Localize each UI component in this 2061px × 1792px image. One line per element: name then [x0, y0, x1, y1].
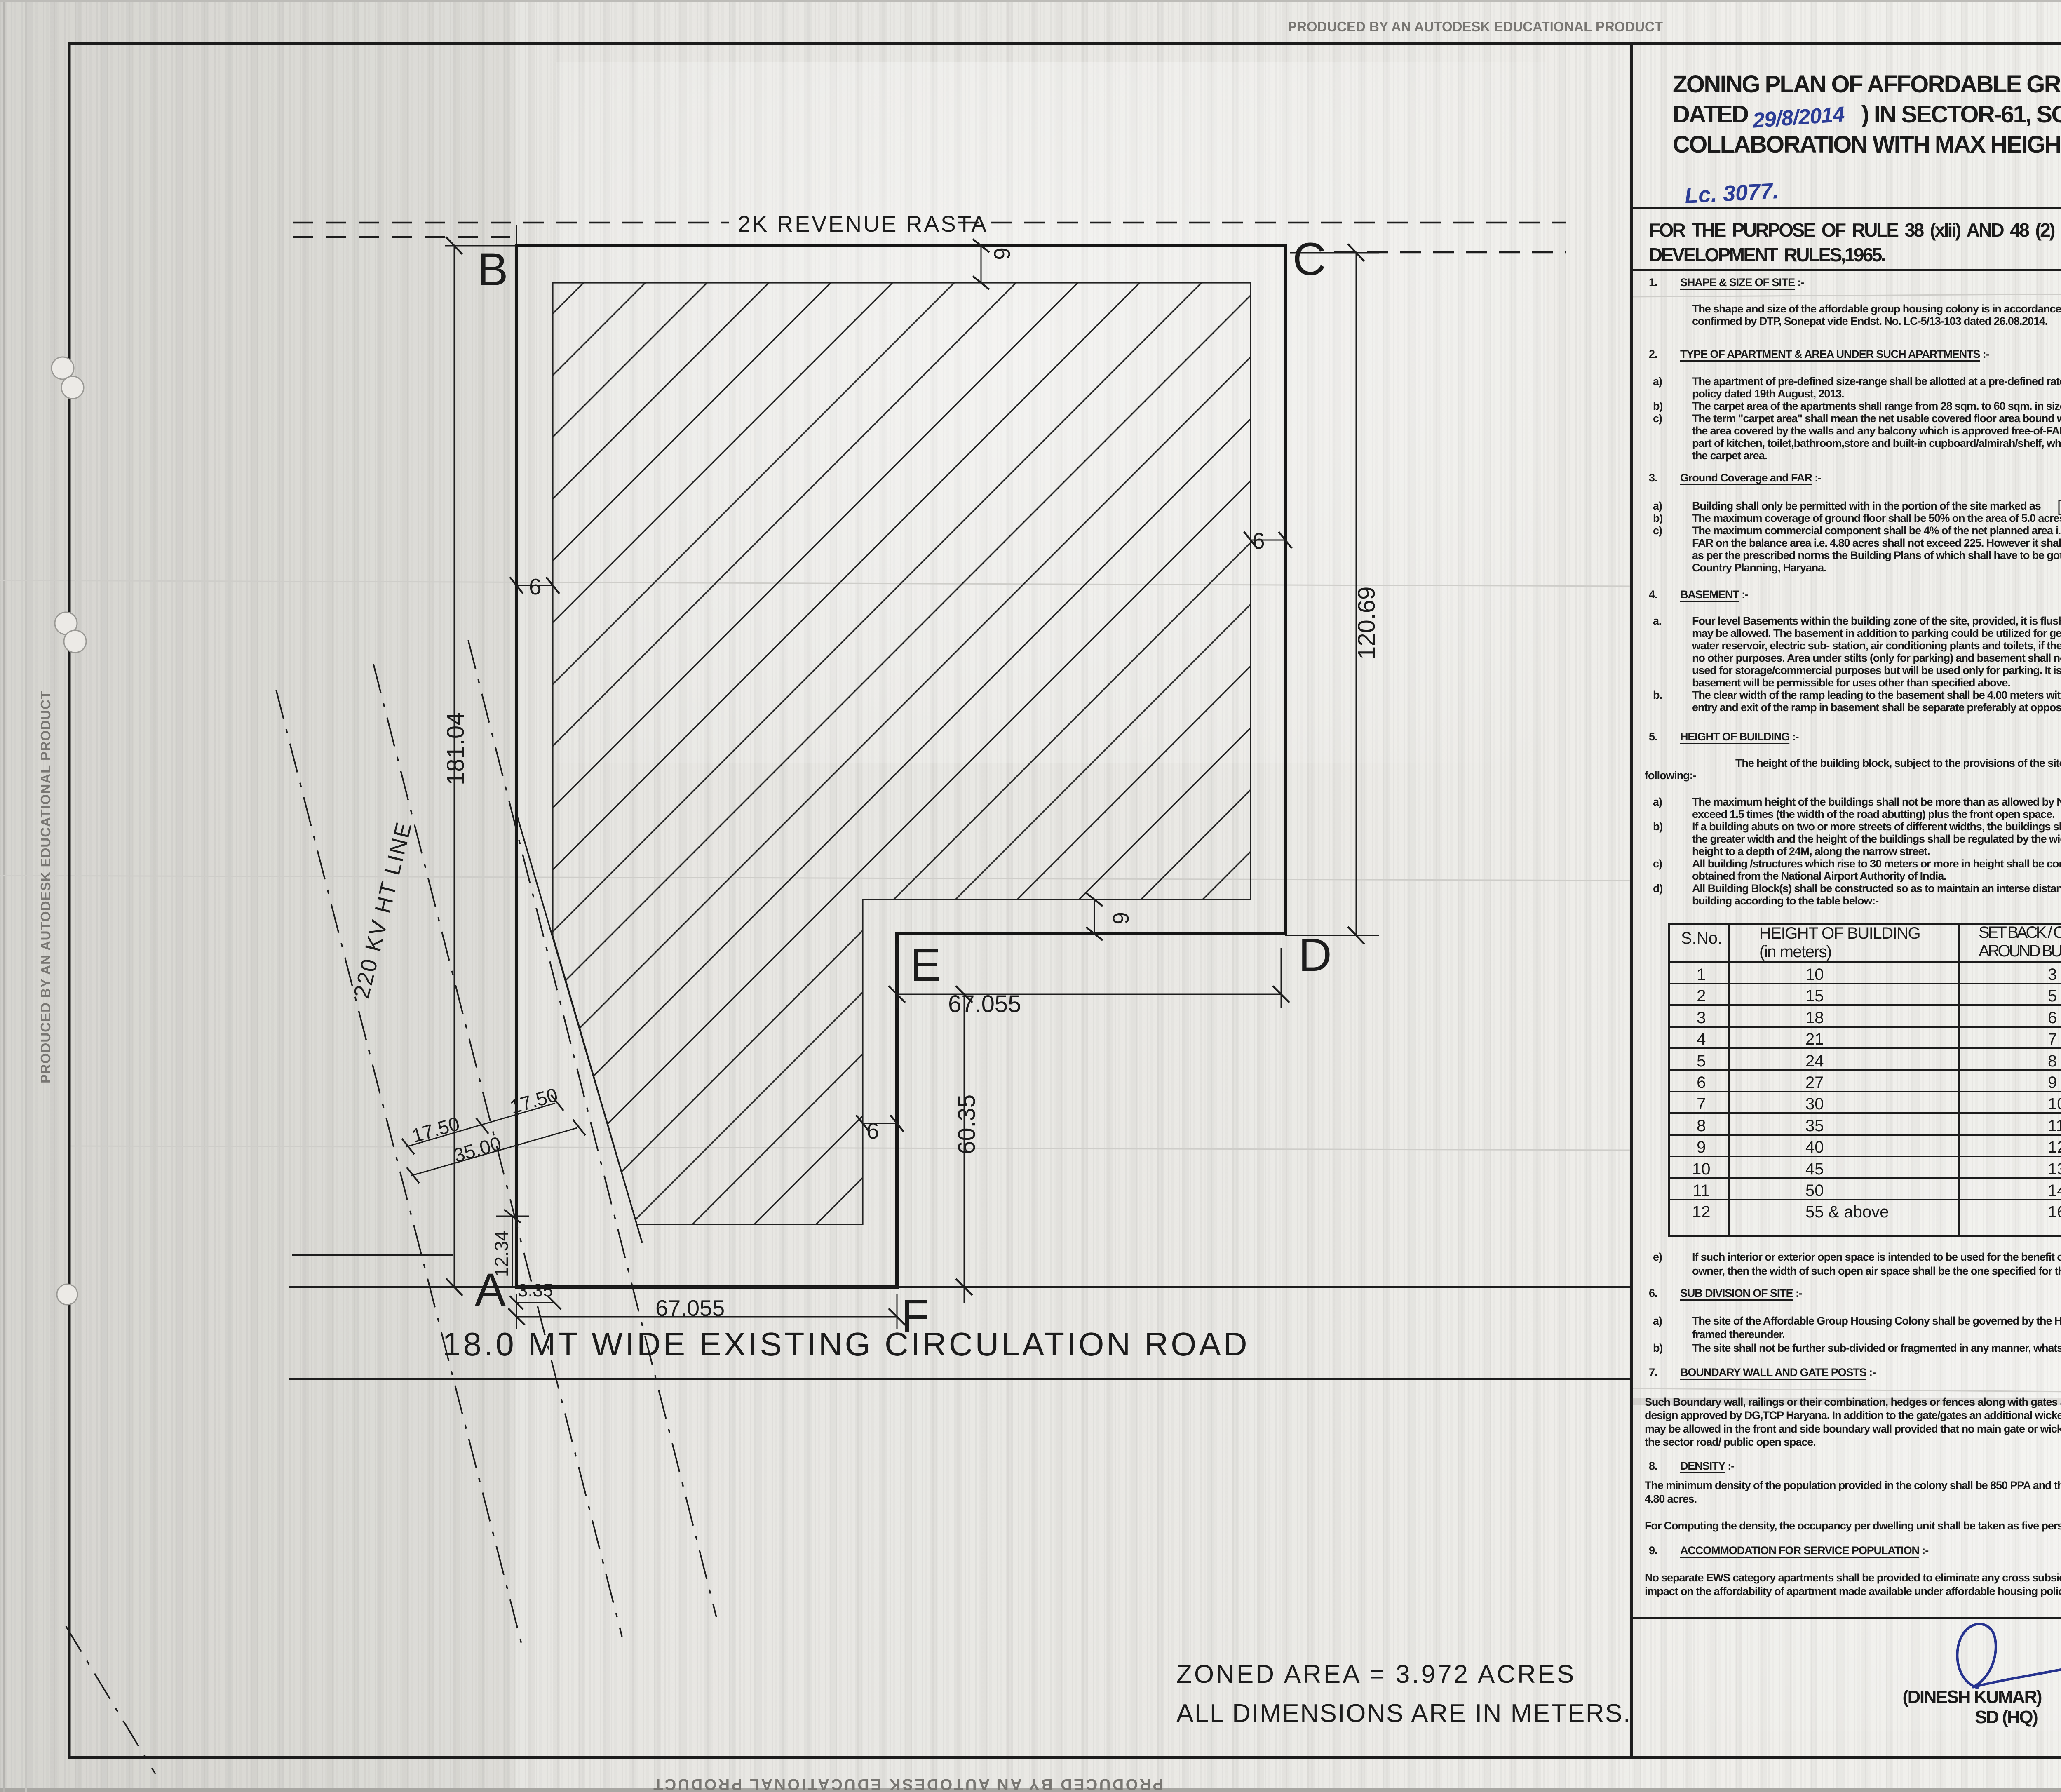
- svg-text:ZONED AREA = 3.972 ACRES: ZONED AREA = 3.972 ACRES: [1176, 1660, 1576, 1689]
- svg-text:PRODUCED BY AN AUTODESK EDUCAT: PRODUCED BY AN AUTODESK EDUCATIONAL PROD…: [652, 1776, 1163, 1792]
- svg-text:6: 6: [1108, 912, 1134, 925]
- svg-text:2K REVENUE RASTA: 2K REVENUE RASTA: [738, 211, 988, 237]
- svg-text:PRODUCED BY AN AUTODESK EDUCAT: PRODUCED BY AN AUTODESK EDUCATIONAL PROD…: [38, 690, 53, 1083]
- svg-text:67.055: 67.055: [948, 991, 1021, 1017]
- svg-text:120.69: 120.69: [1353, 587, 1380, 660]
- svg-text:35.00: 35.00: [451, 1132, 504, 1166]
- svg-text:18.0 MT WIDE EXISTING CIRCULAT: 18.0 MT WIDE EXISTING CIRCULATION ROAD: [442, 1326, 1250, 1362]
- svg-text:6: 6: [529, 574, 542, 599]
- svg-text:6: 6: [866, 1118, 879, 1144]
- svg-text:ALL DIMENSIONS ARE IN METERS.: ALL DIMENSIONS ARE IN METERS.: [1176, 1699, 1631, 1728]
- svg-text:181.04: 181.04: [442, 712, 469, 785]
- svg-text:PRODUCED BY AN AUTODESK EDUCAT: PRODUCED BY AN AUTODESK EDUCATIONAL PROD…: [1288, 19, 1663, 34]
- svg-text:67.055: 67.055: [655, 1295, 725, 1321]
- svg-text:6: 6: [989, 247, 1015, 260]
- svg-text:220 KV HT LINE: 220 KV HT LINE: [349, 819, 417, 1001]
- svg-text:6: 6: [1252, 528, 1265, 554]
- svg-text:C: C: [1293, 233, 1326, 285]
- svg-text:3.35: 3.35: [518, 1280, 553, 1301]
- svg-text:D: D: [1298, 929, 1332, 981]
- svg-text:60.35: 60.35: [953, 1094, 980, 1154]
- svg-text:E: E: [910, 939, 941, 991]
- svg-text:B: B: [477, 244, 508, 295]
- svg-text:12.34: 12.34: [491, 1231, 512, 1277]
